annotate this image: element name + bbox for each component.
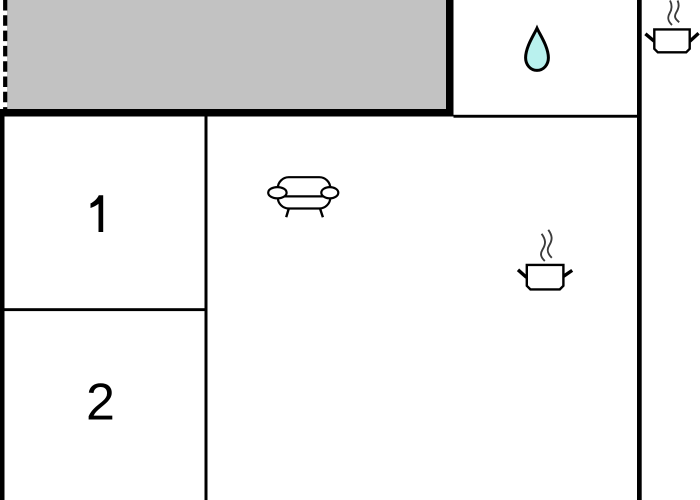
svg-text:2: 2 — [86, 374, 115, 432]
